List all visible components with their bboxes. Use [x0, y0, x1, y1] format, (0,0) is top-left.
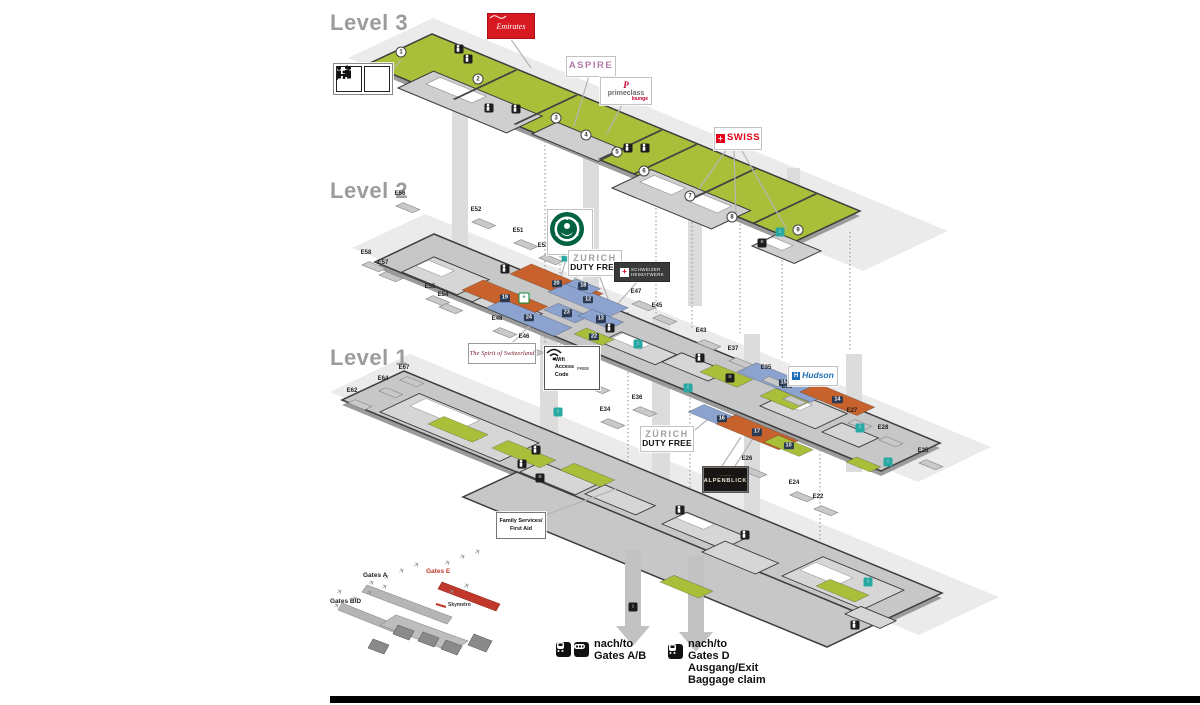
shop-zone-number: 10	[784, 442, 794, 450]
stairs-icon: ≡	[536, 474, 545, 483]
shop-zone-number: 19	[500, 295, 510, 303]
gate-label-e27: E27	[847, 408, 858, 414]
restroom-icon	[455, 45, 464, 54]
wifi-icon	[545, 347, 563, 361]
level2-gate-stub	[514, 240, 538, 250]
level2-gate-stub	[472, 219, 496, 229]
shop-zone-number: 20	[551, 280, 561, 288]
swiss-souvenir-shop-sign: + SCHWEIZER HEIMATWERK	[614, 262, 670, 282]
restroom-icon	[676, 506, 685, 515]
hudson-shop-sign: H Hudson	[788, 366, 838, 386]
elevator-icon: ↕	[629, 603, 638, 612]
gate-label-e28: E28	[878, 425, 889, 431]
gate-label-e58: E58	[361, 250, 372, 256]
emirates-lounge-sign: Emirates	[487, 13, 535, 39]
alpenblick-label: ALPENBLICK	[704, 478, 747, 484]
zurich-duty-free-l2-line2: DUTY FREE	[570, 263, 620, 273]
swiss-lounge-sign: + SWISS	[714, 127, 762, 150]
gate-label-e46: E46	[519, 334, 530, 340]
gate-label-e67: E67	[399, 365, 410, 371]
minimap-gates-a-label: Gates A	[363, 572, 387, 579]
level2-gate-stub	[396, 203, 420, 213]
restroom-icon	[464, 55, 473, 64]
level3-label: Level 3	[330, 10, 408, 36]
emirates-label: Emirates	[497, 22, 526, 31]
baby-care-icon	[364, 66, 390, 92]
primeclass-lounge-sign: P primeclass lounge	[600, 77, 652, 105]
swiss-cross-icon: +	[620, 268, 629, 277]
swiss-label: SWISS	[727, 133, 760, 143]
level3-zone-number: 5	[612, 147, 623, 158]
gate-label-e34: E34	[600, 407, 611, 413]
restroom-icon	[512, 105, 521, 114]
dest2-line4: Baggage claim	[688, 674, 766, 686]
zurich-duty-free-l1-line2: DUTY FREE	[642, 439, 692, 449]
gate-label-e51: E51	[513, 228, 524, 234]
level1-gate-stub	[790, 492, 814, 502]
level3-zone-number: 1	[396, 47, 407, 58]
level1-gate-stub	[601, 419, 625, 429]
minimap-gates-bd-label: Gates B/D	[330, 598, 361, 605]
destination-gates-ab: nach/to Gates A/B	[594, 638, 646, 662]
elevator-icon: ↕	[634, 340, 643, 349]
starbucks-sign	[547, 209, 593, 255]
level3-zone-number: 2	[473, 74, 484, 85]
info-icon: i	[864, 578, 873, 587]
shop-zone-number: 17	[752, 429, 762, 437]
gate-label-e43: E43	[696, 328, 707, 334]
airport-map-canvas: { "colors": { "floor_green": "#a9bf3a", …	[0, 0, 1200, 705]
spirit-of-switzerland-sign: The Spirit of Switzerland	[468, 343, 536, 364]
restroom-icon	[501, 265, 510, 274]
gate-label-e57: E57	[378, 260, 389, 266]
restroom-icon	[624, 144, 633, 153]
dest2-line1: nach/to	[688, 638, 766, 650]
footer-bar	[330, 696, 1200, 703]
aspire-lounge-sign: ASPIRE	[566, 56, 616, 77]
elevator-icon: ↕	[776, 228, 785, 237]
level1-gate-stub	[814, 506, 838, 516]
family-baby-pictogram-box	[333, 63, 393, 95]
alpenblick-bar-sign: ~~~~~ ALPENBLICK	[702, 466, 749, 493]
shop-zone-number: 16	[717, 415, 727, 423]
dest1-line2: Gates A/B	[594, 650, 646, 662]
stairs-icon: ≡	[726, 374, 735, 383]
level2-gate-stub	[439, 304, 463, 314]
gate-label-e48: E48	[492, 316, 503, 322]
level1-label: Level 1	[330, 345, 408, 371]
restroom-icon	[641, 144, 650, 153]
shop-zone-number: 24	[524, 314, 534, 322]
restroom-icon	[741, 531, 750, 540]
gate-label-e56: E56	[395, 191, 406, 197]
level3-zone-number: 4	[581, 130, 592, 141]
swiss-shop-line2: HEIMATWERK	[631, 272, 664, 277]
gate-label-e54: E54	[438, 292, 449, 298]
minimap-skymetro-label: Skymetro	[448, 602, 471, 608]
restroom-icon	[696, 354, 705, 363]
elevator-icon: ↕	[554, 408, 563, 417]
terminal-isometric-artwork	[0, 0, 1200, 705]
gate-label-e55: E55	[425, 284, 436, 290]
shop-zone-number: 13	[596, 315, 606, 323]
swiss-cross-icon: +	[716, 134, 725, 143]
level3-zone-number: 7	[685, 191, 696, 202]
train-icon	[668, 644, 683, 659]
dest1-line1: nach/to	[594, 638, 646, 650]
family-line2: First Aid	[510, 526, 532, 533]
family-line1: Family Services/	[499, 518, 542, 525]
level3-zone-number: 8	[727, 212, 738, 223]
hudson-logo-icon: H	[792, 372, 800, 380]
gate-label-e62: E62	[347, 388, 358, 394]
info-icon: i	[684, 384, 693, 393]
wifi-line2: Access	[555, 364, 574, 371]
level3-zone-number: 3	[551, 113, 562, 124]
shop-zone-number: 12	[583, 296, 593, 304]
shop-zone-number: 18	[578, 283, 588, 291]
level2-gate-stub	[493, 328, 517, 338]
restroom-icon	[518, 460, 527, 469]
wifi-line3: Code	[555, 372, 574, 379]
emirates-calligraphy-icon	[488, 14, 508, 20]
gate-label-e47: E47	[631, 289, 642, 295]
dest2-line3: Ausgang/Exit	[688, 662, 766, 674]
hudson-label: Hudson	[802, 371, 834, 380]
gate-label-e35: E35	[761, 365, 772, 371]
gate-label-e22: E22	[813, 494, 824, 500]
gate-label-e37: E37	[728, 346, 739, 352]
wifi-free-label: FREE	[577, 366, 589, 371]
shop-zone-number: 22	[589, 333, 599, 341]
gate-label-e64: E64	[378, 376, 389, 382]
gate-label-e36: E36	[632, 395, 643, 401]
destination-gates-d-exit: nach/to Gates D Ausgang/Exit Baggage cla…	[688, 638, 766, 686]
shop-zone-number: 23	[562, 309, 572, 317]
level3-zone-number: 9	[793, 225, 804, 236]
minimap-gates-e-label: Gates E	[426, 568, 450, 575]
restroom-icon	[485, 104, 494, 113]
spirit-label: The Spirit of Switzerland	[470, 350, 535, 357]
primeclass-sub-label: lounge	[632, 97, 648, 102]
gate-label-e52: E52	[471, 207, 482, 213]
gate-label-e24: E24	[789, 480, 800, 486]
aspire-label: ASPIRE	[569, 61, 613, 71]
wifi-access-sign: Wifi Access Code FREE	[544, 346, 600, 390]
restroom-icon	[532, 446, 541, 455]
minimap	[338, 582, 500, 655]
restroom-icon	[851, 621, 860, 630]
gate-label-e26: E26	[742, 456, 753, 462]
family-services-sign: Family Services/ First Aid	[496, 512, 546, 539]
starbucks-siren-logo-icon	[548, 210, 586, 248]
info-icon: i	[856, 424, 865, 433]
gate-label-e25: E25	[918, 448, 929, 454]
zurich-duty-free-sign-level1: ZÜRICH DUTY FREE	[640, 426, 694, 452]
gate-label-e45: E45	[652, 303, 663, 309]
level3-zone-number: 6	[639, 166, 650, 177]
first-aid-icon: +	[519, 293, 530, 304]
dest2-line2: Gates D	[688, 650, 766, 662]
elevator-icon: ↕	[884, 458, 893, 467]
shop-zone-number: 14	[832, 396, 842, 404]
skymetro-icon	[574, 642, 589, 657]
primeclass-initial: P	[623, 81, 629, 90]
restroom-icon	[606, 324, 615, 333]
stairs-icon: ≡	[758, 239, 767, 248]
train-icon	[556, 642, 571, 657]
